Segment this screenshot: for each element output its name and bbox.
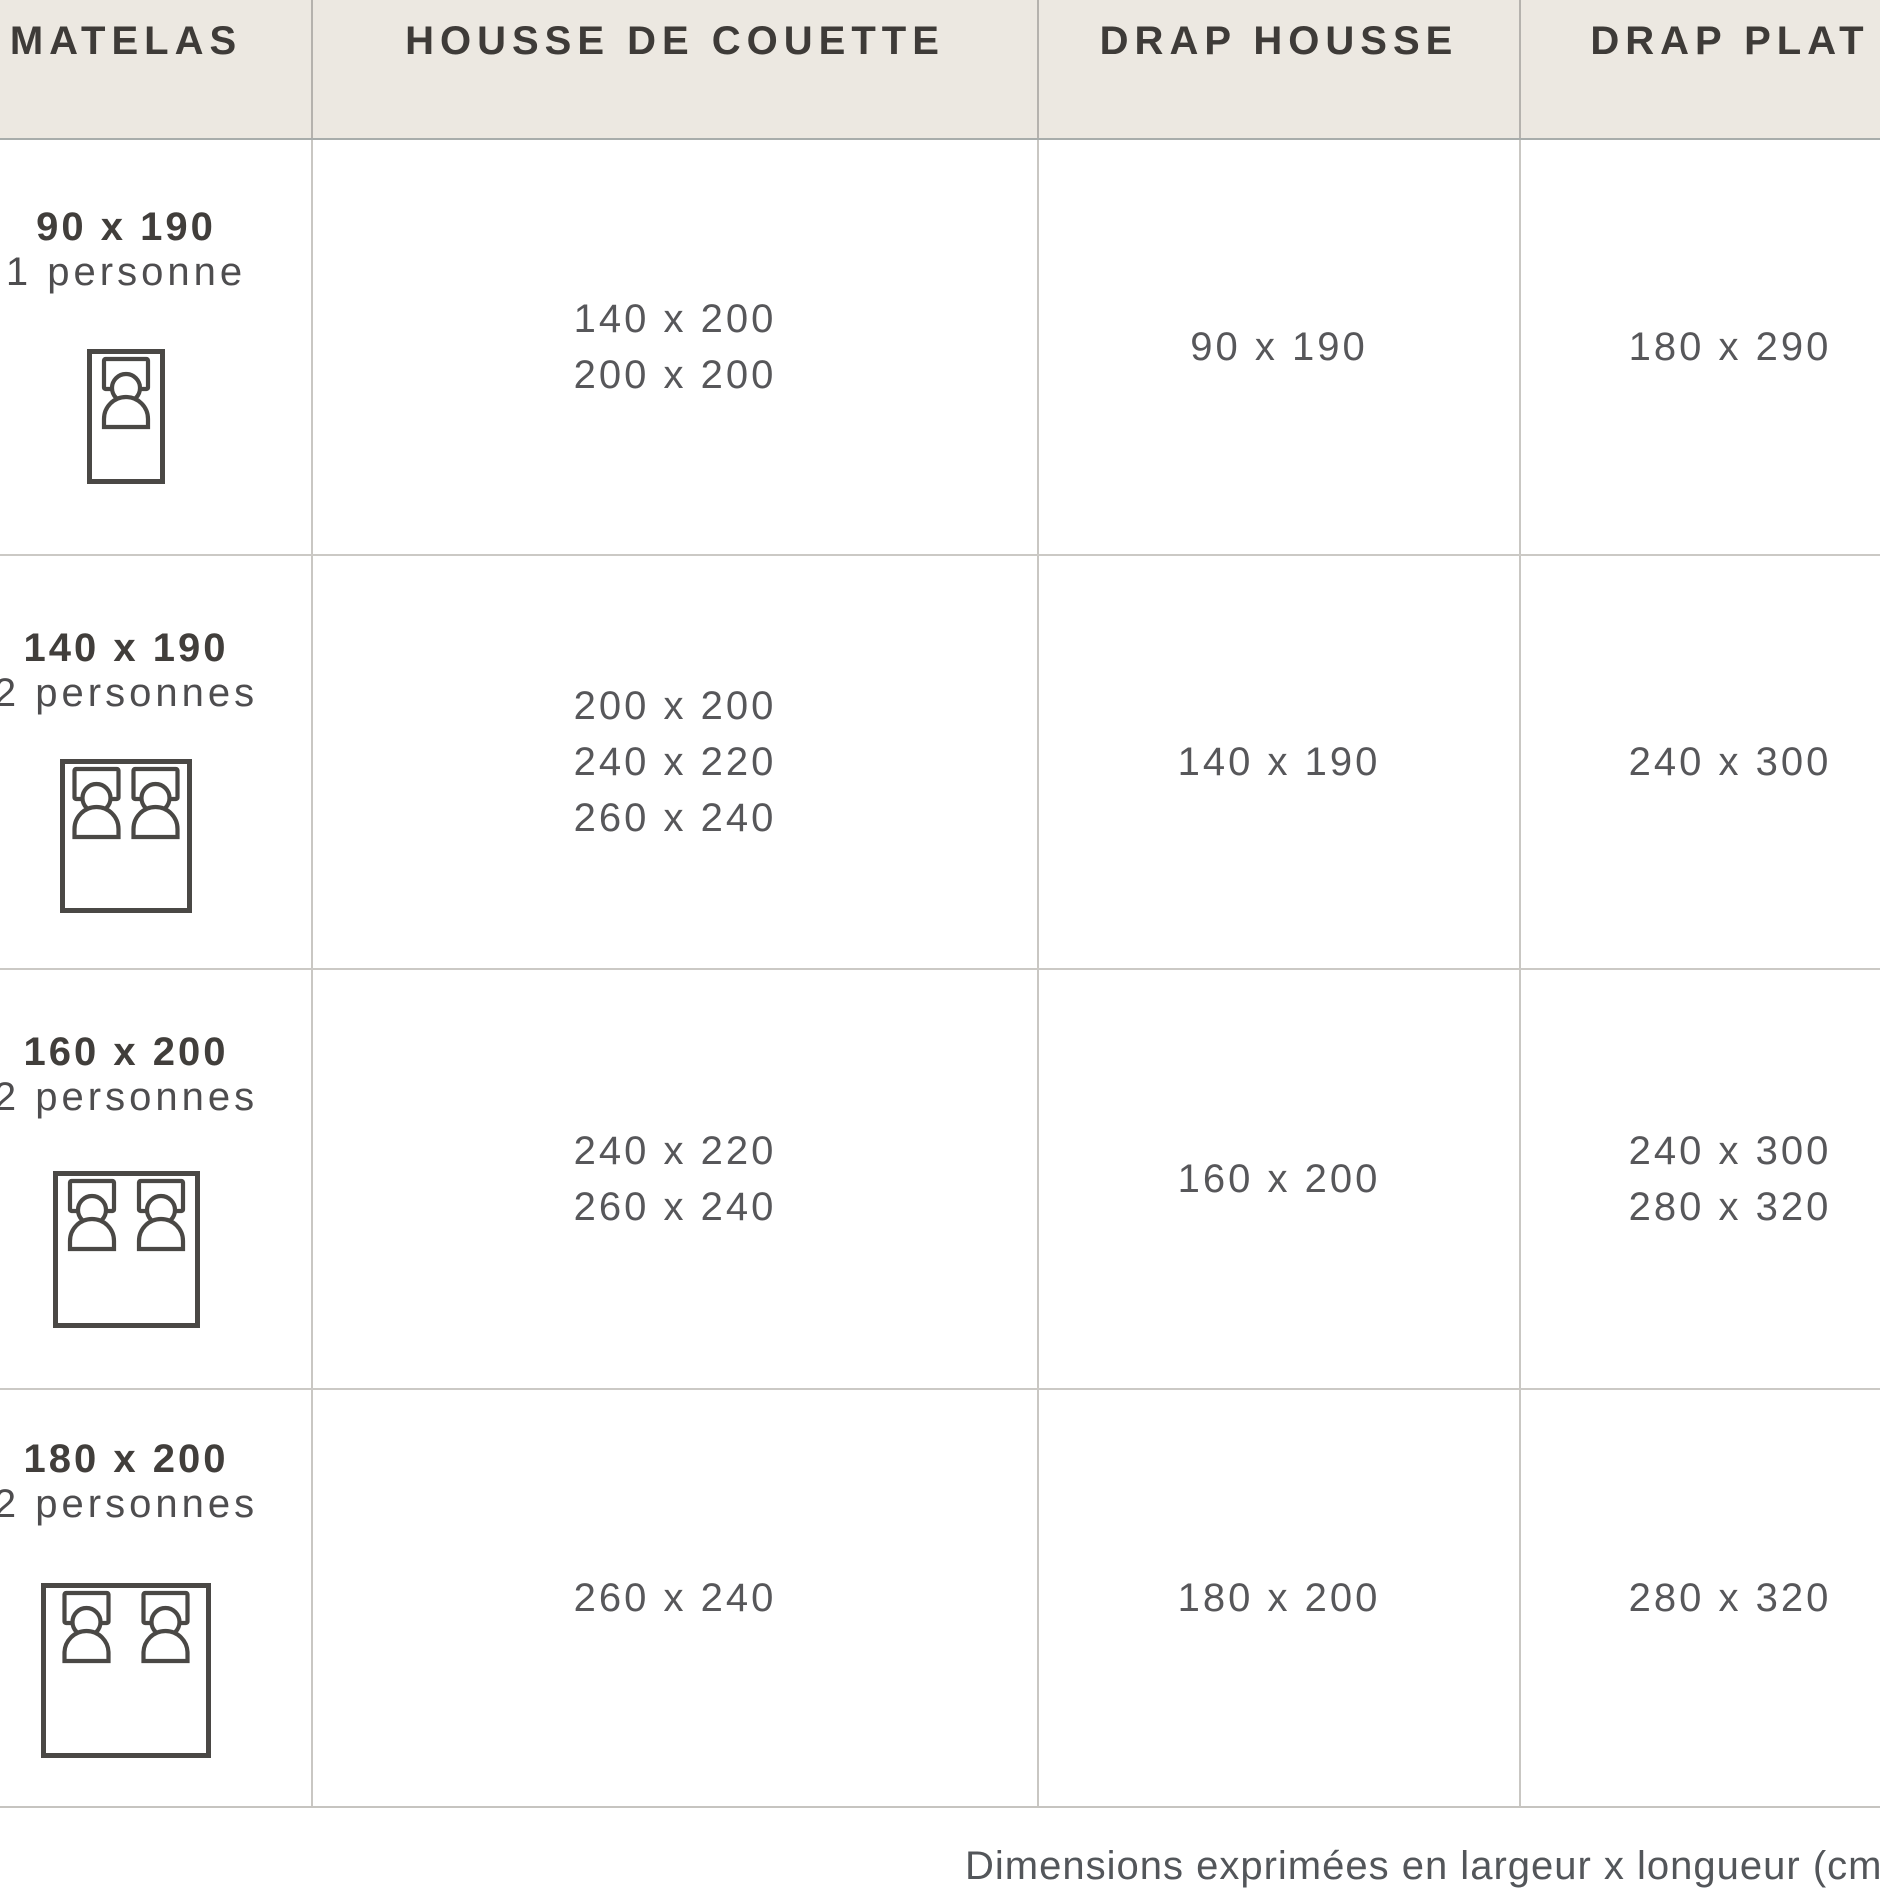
- duvet-cover-sizes: 200 x 200240 x 220260 x 240: [311, 556, 1037, 968]
- size-value-line: 280 x 320: [1629, 1570, 1832, 1626]
- mattress-cell: 140 x 190 2 personnes: [0, 556, 311, 968]
- duvet-cover-sizes: 260 x 240: [311, 1390, 1037, 1806]
- bed-double-icon: [41, 1583, 211, 1758]
- persons-label: 2 personnes: [0, 1074, 258, 1121]
- mattress-cell: 180 x 200 2 personnes: [0, 1390, 311, 1806]
- size-value-line: 160 x 200: [1178, 1151, 1381, 1207]
- persons-label: 2 personnes: [0, 670, 258, 717]
- bed-single-icon: [87, 349, 165, 484]
- fitted-sheet-size: 180 x 200: [1037, 1390, 1519, 1806]
- bed-double-icon: [60, 759, 192, 913]
- flat-sheet-size: 240 x 300: [1519, 556, 1880, 968]
- size-value-line: 180 x 200: [1178, 1570, 1381, 1626]
- table-row-160x200: 160 x 200 2 personnes 240 x 220260 x 240…: [0, 968, 1880, 1388]
- mattress-size-label: 160 x 200: [24, 1030, 229, 1074]
- size-value-line: 240 x 300: [1629, 1123, 1832, 1179]
- size-value-line: 240 x 300: [1629, 734, 1832, 790]
- column-header-matelas: MATELAS: [0, 0, 311, 138]
- column-header-drap-plat: DRAP PLAT: [1519, 0, 1880, 138]
- fitted-sheet-size: 160 x 200: [1037, 970, 1519, 1388]
- mattress-cell: 160 x 200 2 personnes: [0, 970, 311, 1388]
- fitted-sheet-size: 90 x 190: [1037, 140, 1519, 554]
- table-row-140x190: 140 x 190 2 personnes 200 x 200240 x 220…: [0, 554, 1880, 968]
- size-value-line: 140 x 190: [1178, 734, 1381, 790]
- persons-label: 2 personnes: [0, 1481, 258, 1528]
- mattress-size-label: 180 x 200: [24, 1437, 229, 1481]
- bed-linen-size-guide-table: MATELAS HOUSSE DE COUETTE DRAP HOUSSE DR…: [0, 0, 1880, 1808]
- flat-sheet-size: 280 x 320: [1519, 1390, 1880, 1806]
- mattress-size-label: 140 x 190: [24, 626, 229, 670]
- bed-double-icon: [53, 1171, 200, 1328]
- column-header-drap-housse: DRAP HOUSSE: [1037, 0, 1519, 138]
- size-value-line: 260 x 240: [574, 790, 777, 846]
- flat-sheet-size: 240 x 300280 x 320: [1519, 970, 1880, 1388]
- mattress-cell: 90 x 190 1 personne: [0, 140, 311, 554]
- size-value-line: 200 x 200: [574, 678, 777, 734]
- column-header-housse-de-couette: HOUSSE DE COUETTE: [311, 0, 1037, 138]
- size-value-line: 240 x 220: [574, 1123, 777, 1179]
- table-row-90x190: 90 x 190 1 personne 140 x 200200 x 200 9…: [0, 140, 1880, 554]
- size-value-line: 280 x 320: [1629, 1179, 1832, 1235]
- size-value-line: 200 x 200: [574, 347, 777, 403]
- duvet-cover-sizes: 140 x 200200 x 200: [311, 140, 1037, 554]
- mattress-size-label: 90 x 190: [36, 205, 216, 249]
- size-value-line: 260 x 240: [574, 1570, 777, 1626]
- table-row-180x200: 180 x 200 2 personnes 260 x 240 180 x 20…: [0, 1388, 1880, 1808]
- size-value-line: 140 x 200: [574, 291, 777, 347]
- dimensions-footnote: Dimensions exprimées en largeur x longue…: [965, 1843, 1880, 1889]
- header-row: MATELAS HOUSSE DE COUETTE DRAP HOUSSE DR…: [0, 0, 1880, 140]
- size-value-line: 240 x 220: [574, 734, 777, 790]
- duvet-cover-sizes: 240 x 220260 x 240: [311, 970, 1037, 1388]
- persons-label: 1 personne: [6, 249, 246, 296]
- size-value-line: 260 x 240: [574, 1179, 777, 1235]
- size-value-line: 90 x 190: [1190, 319, 1367, 375]
- fitted-sheet-size: 140 x 190: [1037, 556, 1519, 968]
- flat-sheet-size: 180 x 290: [1519, 140, 1880, 554]
- size-value-line: 180 x 290: [1629, 319, 1832, 375]
